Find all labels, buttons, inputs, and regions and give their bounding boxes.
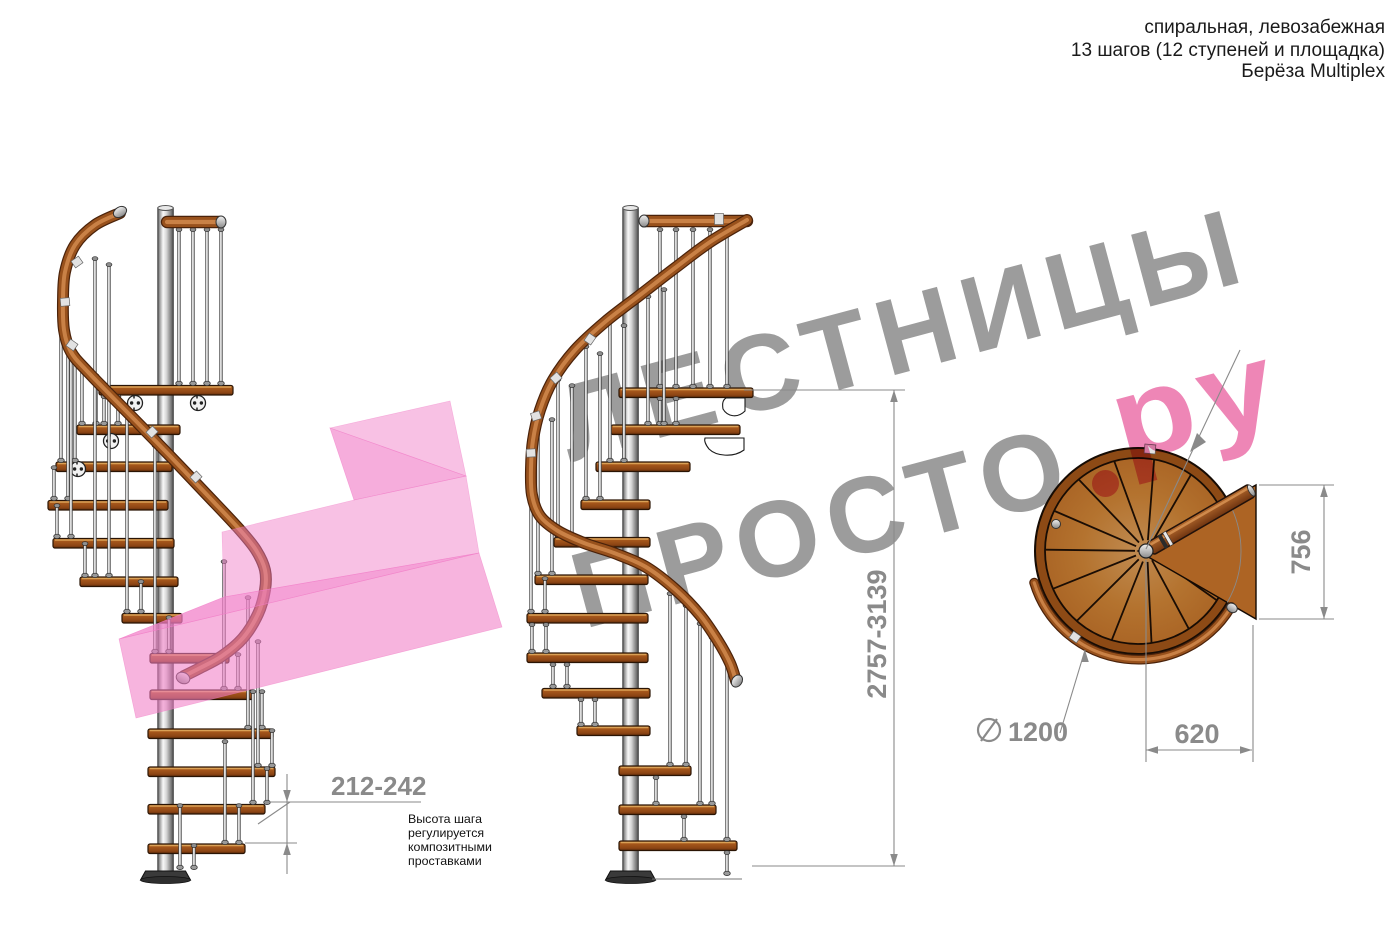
svg-text:проставками: проставками <box>408 854 482 868</box>
svg-text:756: 756 <box>1286 529 1316 574</box>
svg-text:Берёза Multiplex: Берёза Multiplex <box>1241 61 1385 82</box>
svg-text:212-242: 212-242 <box>331 771 426 801</box>
svg-text:13 шагов (12 ступеней и площад: 13 шагов (12 ступеней и площадка) <box>1071 40 1385 61</box>
svg-text:Высота шага: Высота шага <box>408 812 482 826</box>
svg-text:спиральная, левозабежная: спиральная, левозабежная <box>1144 17 1385 38</box>
svg-text:2757-3139: 2757-3139 <box>862 569 892 698</box>
svg-text:регулируется: регулируется <box>408 826 484 840</box>
svg-text:1200: 1200 <box>1008 717 1068 747</box>
svg-text:620: 620 <box>1174 719 1219 749</box>
svg-text:композитными: композитными <box>408 840 492 854</box>
